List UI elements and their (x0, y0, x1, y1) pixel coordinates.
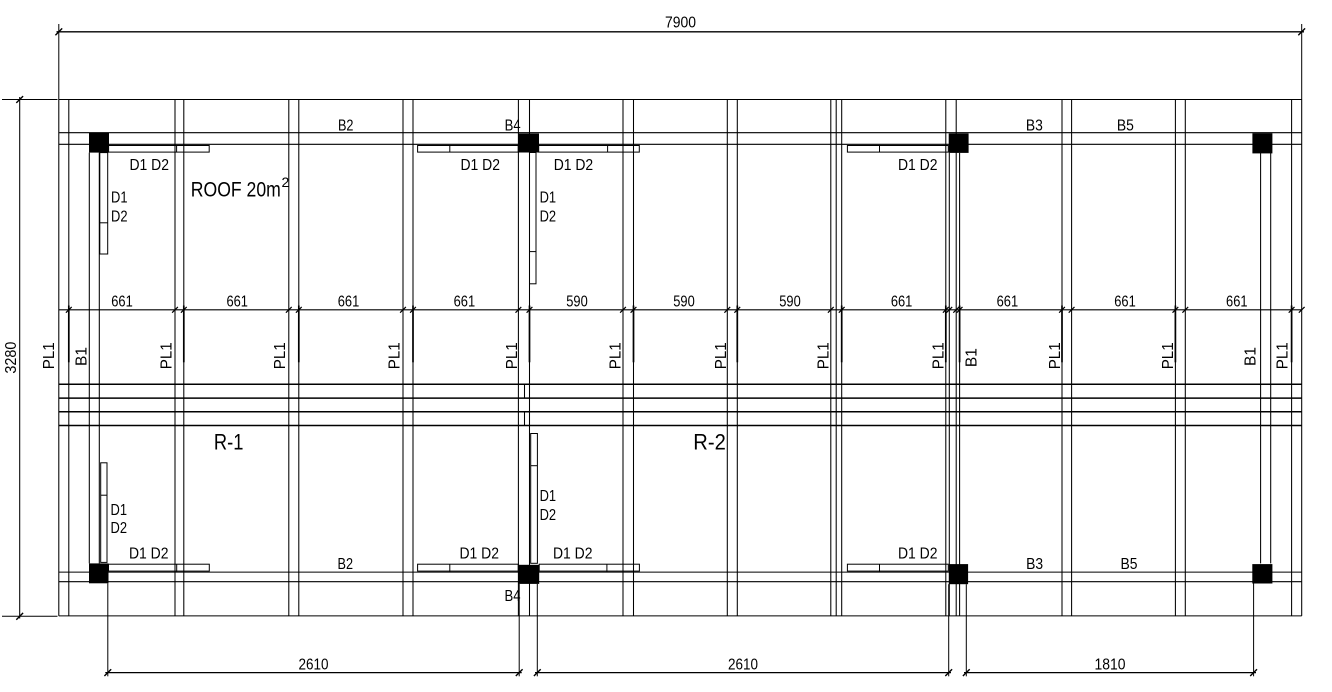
svg-text:590: 590 (566, 294, 588, 311)
svg-text:D1: D1 (540, 190, 557, 207)
svg-text:PL1: PL1 (41, 342, 58, 369)
svg-text:R-1: R-1 (214, 429, 244, 454)
svg-text:B4: B4 (505, 588, 521, 605)
svg-text:3280: 3280 (3, 342, 20, 374)
svg-text:PL1: PL1 (1275, 342, 1292, 369)
svg-text:PL1: PL1 (713, 342, 730, 369)
svg-text:B1: B1 (1243, 347, 1260, 366)
svg-text:B3: B3 (1026, 118, 1043, 135)
svg-text:B1: B1 (73, 347, 90, 366)
svg-text:PL1: PL1 (931, 342, 948, 369)
svg-text:661: 661 (226, 294, 248, 311)
svg-text:D2: D2 (540, 507, 557, 524)
svg-text:590: 590 (673, 294, 695, 311)
svg-text:2: 2 (282, 174, 290, 190)
svg-text:B2: B2 (338, 118, 354, 135)
svg-text:D2: D2 (111, 520, 128, 537)
svg-text:2610: 2610 (299, 657, 329, 674)
svg-text:PL1: PL1 (1047, 342, 1064, 369)
svg-text:B1: B1 (964, 348, 981, 367)
svg-text:R-2: R-2 (693, 430, 726, 455)
svg-text:D1: D1 (540, 488, 557, 505)
svg-text:PL1: PL1 (1160, 342, 1177, 369)
svg-text:B3: B3 (1026, 556, 1043, 573)
svg-text:D1 D2: D1 D2 (130, 157, 170, 174)
svg-text:B5: B5 (1121, 556, 1138, 573)
svg-text:2610: 2610 (728, 657, 758, 674)
svg-text:D1 D2: D1 D2 (898, 157, 938, 174)
svg-text:B5: B5 (1117, 118, 1134, 135)
svg-text:1810: 1810 (1095, 657, 1126, 674)
svg-text:D2: D2 (540, 208, 557, 225)
svg-text:ROOF 20m: ROOF 20m (191, 179, 281, 202)
svg-text:7900: 7900 (665, 15, 696, 32)
svg-text:PL1: PL1 (158, 342, 175, 369)
svg-text:B4: B4 (505, 118, 521, 135)
svg-text:D2: D2 (111, 208, 128, 225)
svg-text:D1 D2: D1 D2 (898, 545, 938, 562)
svg-text:PL1: PL1 (816, 342, 833, 369)
svg-text:PL1: PL1 (608, 342, 625, 369)
svg-text:D1 D2: D1 D2 (553, 545, 593, 562)
svg-text:661: 661 (338, 294, 360, 311)
svg-text:D1: D1 (111, 190, 128, 207)
svg-text:PL1: PL1 (504, 342, 521, 369)
svg-text:B2: B2 (338, 556, 354, 573)
svg-text:PL1: PL1 (272, 342, 289, 369)
svg-text:D1 D2: D1 D2 (554, 157, 594, 174)
svg-text:D1 D2: D1 D2 (460, 545, 500, 562)
svg-text:D1 D2: D1 D2 (129, 545, 169, 562)
svg-text:590: 590 (779, 294, 801, 311)
svg-text:PL1: PL1 (386, 342, 403, 369)
svg-text:D1: D1 (111, 502, 128, 519)
svg-text:661: 661 (111, 294, 133, 311)
svg-text:661: 661 (997, 294, 1019, 311)
svg-text:661: 661 (1226, 294, 1248, 311)
svg-text:661: 661 (454, 294, 476, 311)
svg-text:D1 D2: D1 D2 (461, 157, 501, 174)
svg-text:661: 661 (1114, 294, 1136, 311)
svg-text:661: 661 (891, 294, 913, 311)
